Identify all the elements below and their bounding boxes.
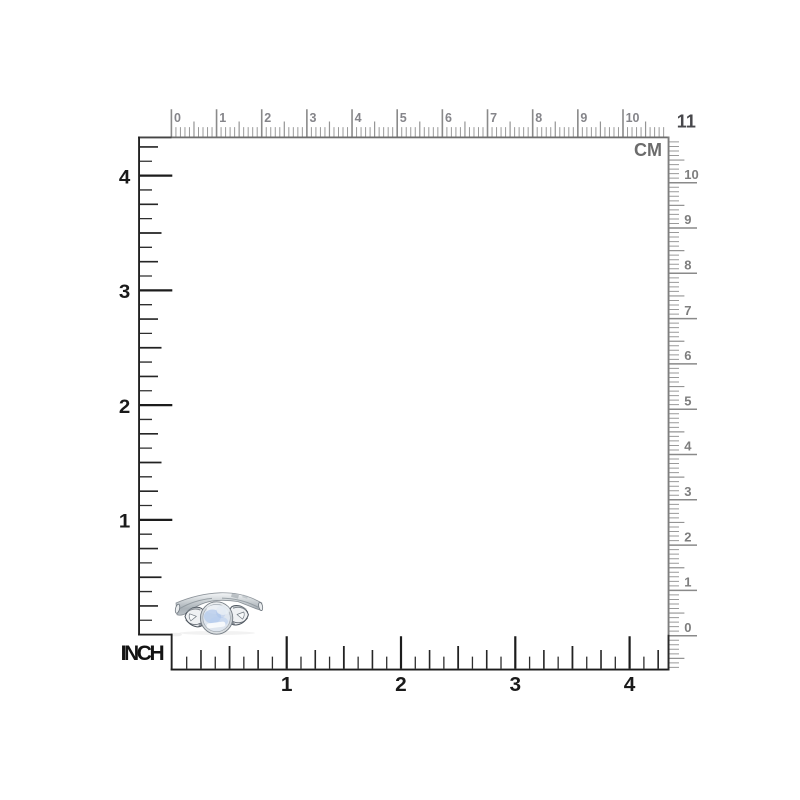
svg-text:3: 3 (510, 674, 522, 696)
svg-text:1: 1 (281, 674, 293, 696)
svg-text:2: 2 (264, 111, 271, 125)
svg-text:3: 3 (310, 111, 317, 125)
svg-text:9: 9 (684, 212, 691, 227)
svg-text:6: 6 (445, 111, 452, 125)
svg-text:4: 4 (684, 439, 692, 454)
svg-text:2: 2 (119, 396, 131, 418)
svg-text:0: 0 (684, 620, 691, 635)
svg-text:1: 1 (684, 575, 691, 590)
svg-text:INCH: INCH (121, 642, 164, 665)
svg-text:8: 8 (684, 258, 691, 273)
svg-text:4: 4 (355, 111, 362, 125)
svg-text:6: 6 (684, 348, 691, 363)
svg-text:1: 1 (119, 511, 131, 533)
svg-text:11: 11 (677, 111, 696, 131)
svg-text:5: 5 (400, 111, 407, 125)
svg-text:7: 7 (684, 303, 691, 318)
svg-text:3: 3 (119, 281, 131, 303)
svg-text:5: 5 (684, 393, 691, 408)
svg-text:4: 4 (119, 166, 131, 188)
svg-text:10: 10 (626, 111, 640, 125)
svg-text:8: 8 (535, 111, 542, 125)
svg-text:3: 3 (684, 484, 691, 499)
svg-text:7: 7 (490, 111, 497, 125)
svg-text:0: 0 (174, 111, 181, 125)
svg-text:10: 10 (684, 167, 698, 182)
svg-text:4: 4 (624, 674, 637, 696)
svg-text:CM: CM (634, 140, 662, 160)
svg-text:2: 2 (395, 674, 407, 696)
svg-text:9: 9 (580, 111, 587, 125)
svg-text:2: 2 (684, 529, 691, 544)
svg-text:1: 1 (219, 111, 226, 125)
